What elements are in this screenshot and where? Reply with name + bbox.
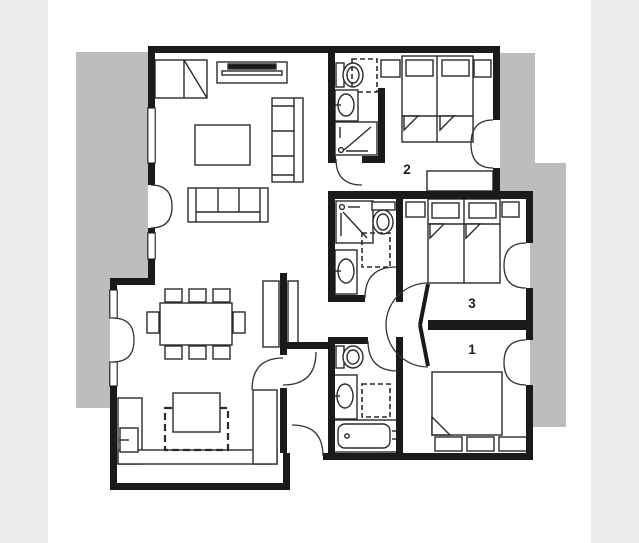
twin-bed bbox=[402, 56, 473, 142]
left-margin-strip bbox=[0, 0, 48, 543]
storage-box bbox=[467, 437, 494, 451]
nightstand bbox=[474, 60, 491, 77]
wall-east-mid bbox=[526, 288, 533, 340]
counter-east bbox=[253, 390, 277, 464]
bedroom-3-label: 3 bbox=[468, 296, 476, 311]
cabinet-west bbox=[263, 281, 279, 347]
shadow-left-lower bbox=[76, 285, 110, 408]
dining-table bbox=[160, 303, 232, 345]
coffee-table bbox=[195, 125, 250, 165]
wall-bath-mid-west bbox=[328, 191, 335, 302]
tv-screen bbox=[228, 64, 276, 69]
floor-plan-svg: 2 3 1 bbox=[0, 0, 639, 543]
bathtub-icon bbox=[333, 420, 402, 452]
wall-partition-b bbox=[280, 388, 287, 453]
wall-bath-top-east bbox=[378, 88, 385, 163]
wall-east-upper bbox=[526, 192, 533, 243]
shower-icon bbox=[335, 122, 377, 155]
shower-icon bbox=[336, 201, 373, 243]
corner-cabinet bbox=[155, 60, 207, 98]
bedroom-1-label: 1 bbox=[468, 342, 476, 357]
tv-console bbox=[217, 62, 287, 83]
pillow bbox=[432, 203, 459, 218]
shadow-right-lower bbox=[530, 196, 566, 427]
nightstand bbox=[406, 202, 425, 217]
wall-north bbox=[148, 46, 500, 53]
kitchen-appliance bbox=[119, 428, 138, 452]
pillow bbox=[469, 203, 496, 218]
wall-bedroom2-east-a bbox=[493, 46, 500, 120]
wall-bath-mid-south bbox=[328, 295, 365, 302]
storage-box bbox=[499, 437, 527, 451]
pillow bbox=[406, 60, 433, 76]
wall-west-upper bbox=[148, 46, 155, 108]
wall-west-lower bbox=[110, 278, 117, 290]
window-dining-west bbox=[110, 290, 117, 318]
wall-bath-bottom-west bbox=[328, 337, 335, 460]
wall-bedroom-divider bbox=[428, 320, 533, 330]
shadow-left-upper bbox=[76, 52, 148, 285]
nightstand bbox=[381, 60, 400, 77]
wall-bath-top-west bbox=[328, 46, 335, 163]
wall-band-mid bbox=[328, 191, 533, 199]
toilet-icon bbox=[336, 63, 363, 87]
window-living-west bbox=[148, 108, 155, 163]
wall-kitchen-east-step bbox=[283, 453, 290, 490]
wall-bath-mid-east bbox=[396, 191, 403, 302]
window-dining-west-2 bbox=[110, 362, 117, 386]
sink-icon bbox=[335, 250, 357, 294]
window-living-west-2 bbox=[148, 233, 155, 259]
nightstand bbox=[502, 202, 519, 217]
pillow bbox=[442, 60, 469, 76]
wall-west-kitchen bbox=[110, 386, 117, 490]
double-bed bbox=[432, 372, 502, 435]
wall-south-kitchen bbox=[110, 483, 290, 490]
twin-bed bbox=[428, 199, 500, 283]
sofa-vertical bbox=[272, 98, 303, 182]
sink-icon bbox=[335, 90, 358, 121]
wall-partition-a bbox=[280, 273, 287, 355]
toilet-icon bbox=[372, 202, 395, 234]
wall-west bbox=[148, 228, 155, 233]
wall-bedroom2-east-b bbox=[493, 168, 500, 192]
wall-mudroom-north bbox=[287, 342, 328, 349]
wall-south-bedrooms bbox=[323, 453, 533, 460]
wardrobe bbox=[427, 171, 493, 191]
toilet-icon bbox=[336, 346, 363, 368]
shadow-right-upper bbox=[500, 53, 535, 163]
wall-bath-top-south-a bbox=[328, 156, 336, 163]
kitchen-island bbox=[173, 393, 220, 432]
sofa-horizontal bbox=[188, 188, 268, 222]
wall-west bbox=[148, 163, 155, 185]
right-margin-strip bbox=[591, 0, 639, 543]
wall-bath-bottom-north-a bbox=[328, 337, 368, 344]
storage-box bbox=[435, 437, 462, 451]
kitchen bbox=[118, 390, 277, 464]
sink-icon bbox=[334, 375, 357, 419]
floor-plan-canvas: 2 3 1 bbox=[0, 0, 639, 543]
bedroom-2-label: 2 bbox=[403, 162, 411, 177]
wall-east-lower bbox=[526, 385, 533, 460]
cabinet-east bbox=[288, 281, 298, 345]
